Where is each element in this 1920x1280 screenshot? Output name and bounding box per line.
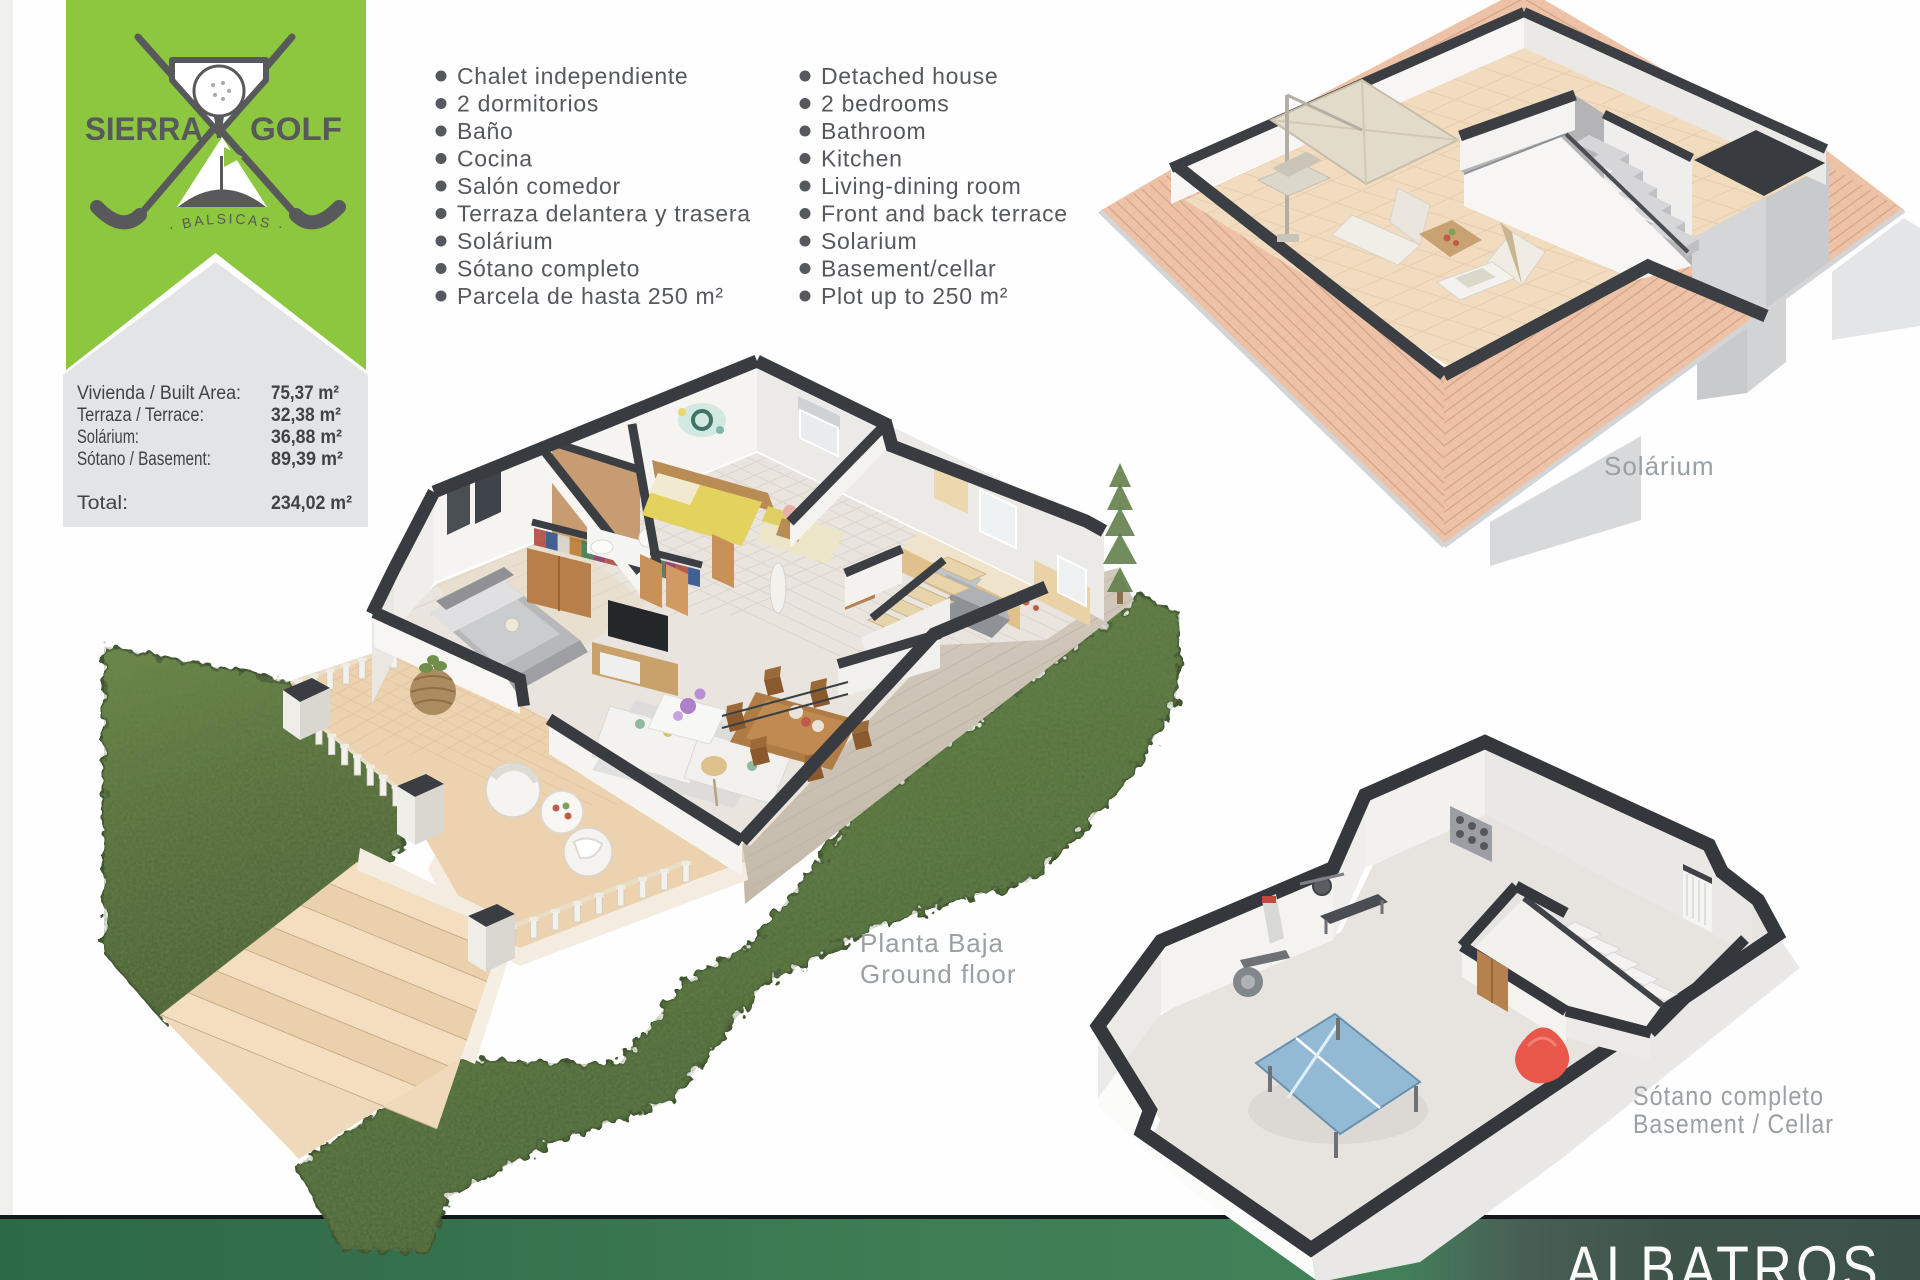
svg-text:Solárium:: Solárium:: [77, 427, 139, 448]
svg-text:Ground floor: Ground floor: [860, 959, 1017, 989]
svg-text:Sótano / Basement:: Sótano / Basement:: [77, 449, 211, 470]
svg-text:Planta Baja: Planta Baja: [860, 928, 1004, 958]
svg-text:Plot up to 250 m²: Plot up to 250 m²: [821, 283, 1008, 309]
svg-text:SIERRA: SIERRA: [85, 111, 203, 147]
svg-text:Chalet independiente: Chalet independiente: [457, 63, 688, 89]
svg-text:Detached house: Detached house: [821, 63, 998, 89]
svg-text:Living-dining room: Living-dining room: [821, 173, 1022, 199]
svg-text:Bathroom: Bathroom: [821, 118, 926, 144]
svg-text:Vivienda / Built Area:: Vivienda / Built Area:: [77, 383, 241, 404]
svg-text:Cocina: Cocina: [457, 146, 533, 172]
svg-text:Terraza delantera y trasera: Terraza delantera y trasera: [457, 201, 751, 227]
svg-text:Baño: Baño: [457, 118, 514, 144]
svg-text:Basement/cellar: Basement/cellar: [821, 256, 996, 282]
svg-text:Terraza / Terrace:: Terraza / Terrace:: [77, 405, 204, 426]
svg-text:Basement / Cellar: Basement / Cellar: [1633, 1109, 1834, 1139]
svg-text:Sótano completo: Sótano completo: [457, 256, 640, 282]
svg-text:2 dormitorios: 2 dormitorios: [457, 91, 599, 117]
svg-text:Kitchen: Kitchen: [821, 146, 903, 172]
svg-text:Sótano completo: Sótano completo: [1633, 1081, 1824, 1111]
svg-text:Front and back terrace: Front and back terrace: [821, 201, 1068, 227]
svg-text:36,88 m²: 36,88 m²: [271, 427, 342, 448]
svg-text:Total:: Total:: [77, 493, 128, 514]
svg-text:ALBATROS: ALBATROS: [1566, 1234, 1882, 1280]
svg-text:Salón comedor: Salón comedor: [457, 173, 621, 199]
svg-text:234,02 m²: 234,02 m²: [271, 493, 352, 514]
svg-text:Solárium: Solárium: [457, 228, 553, 254]
svg-text:2 bedrooms: 2 bedrooms: [821, 91, 949, 117]
svg-text:GOLF: GOLF: [250, 111, 342, 147]
svg-text:Solárium: Solárium: [1604, 451, 1715, 481]
svg-text:Solarium: Solarium: [821, 228, 917, 254]
svg-text:32,38 m²: 32,38 m²: [271, 405, 341, 426]
svg-text:89,39 m²: 89,39 m²: [271, 449, 343, 470]
svg-text:75,37 m²: 75,37 m²: [271, 383, 339, 404]
svg-text:Parcela de hasta 250 m²: Parcela de hasta 250 m²: [457, 283, 724, 309]
